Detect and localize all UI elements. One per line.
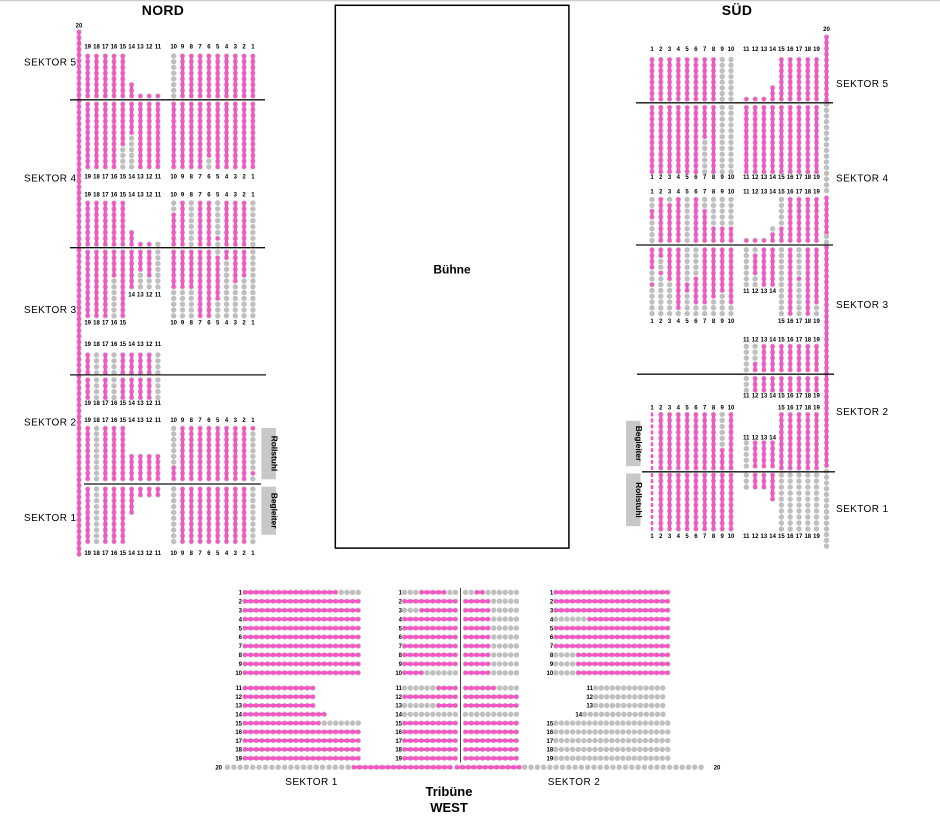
svg-text:17: 17	[796, 175, 803, 181]
svg-text:10: 10	[170, 193, 177, 199]
svg-text:19: 19	[84, 175, 91, 181]
svg-text:3: 3	[668, 319, 672, 325]
svg-text:5: 5	[216, 418, 220, 424]
svg-text:7: 7	[198, 321, 202, 327]
svg-text:15: 15	[778, 319, 785, 325]
svg-text:17: 17	[102, 193, 109, 199]
svg-text:13: 13	[761, 393, 768, 399]
svg-text:3: 3	[234, 551, 238, 557]
svg-text:4: 4	[225, 193, 229, 199]
svg-text:20: 20	[823, 27, 830, 33]
svg-text:17: 17	[796, 319, 803, 325]
svg-text:14: 14	[128, 551, 135, 557]
svg-text:16: 16	[787, 175, 794, 181]
svg-text:19: 19	[84, 418, 91, 424]
svg-text:14: 14	[128, 342, 135, 348]
svg-text:17: 17	[796, 393, 803, 399]
svg-text:9: 9	[721, 175, 725, 181]
svg-text:10: 10	[728, 534, 735, 540]
svg-text:7: 7	[198, 45, 202, 51]
svg-text:15: 15	[119, 321, 126, 327]
svg-text:14: 14	[769, 338, 776, 344]
svg-text:10: 10	[728, 175, 735, 181]
svg-text:19: 19	[813, 338, 820, 344]
svg-text:1: 1	[251, 551, 255, 557]
svg-text:3: 3	[668, 405, 672, 411]
svg-text:SEKTOR 1: SEKTOR 1	[836, 504, 889, 515]
svg-text:15: 15	[778, 175, 785, 181]
svg-text:10: 10	[728, 319, 735, 325]
svg-text:8: 8	[712, 190, 716, 196]
svg-text:12: 12	[146, 551, 153, 557]
svg-text:11: 11	[155, 551, 162, 557]
svg-text:12: 12	[752, 47, 759, 53]
svg-text:8: 8	[190, 45, 194, 51]
svg-text:10: 10	[728, 190, 735, 196]
svg-text:18: 18	[804, 338, 811, 344]
svg-text:SEKTOR 3: SEKTOR 3	[836, 300, 889, 311]
svg-text:6: 6	[207, 551, 211, 557]
svg-text:19: 19	[813, 393, 820, 399]
svg-text:9: 9	[181, 551, 185, 557]
svg-text:SEKTOR 2: SEKTOR 2	[24, 418, 77, 429]
svg-text:19: 19	[813, 175, 820, 181]
svg-text:13: 13	[137, 193, 144, 199]
svg-text:11: 11	[155, 193, 162, 199]
svg-text:16: 16	[787, 47, 794, 53]
svg-text:11: 11	[155, 418, 162, 424]
svg-text:13: 13	[137, 401, 144, 407]
svg-text:13: 13	[761, 534, 768, 540]
svg-text:12: 12	[752, 289, 759, 295]
svg-text:12: 12	[752, 175, 759, 181]
svg-text:2: 2	[242, 321, 246, 327]
svg-text:8: 8	[712, 175, 716, 181]
svg-text:17: 17	[102, 321, 109, 327]
svg-text:16: 16	[787, 190, 794, 196]
svg-text:3: 3	[234, 418, 238, 424]
svg-text:4: 4	[225, 45, 229, 51]
svg-text:11: 11	[155, 175, 162, 181]
svg-text:2: 2	[659, 190, 663, 196]
svg-text:17: 17	[796, 190, 803, 196]
svg-text:4: 4	[225, 175, 229, 181]
svg-text:15: 15	[119, 418, 126, 424]
svg-text:5: 5	[685, 534, 689, 540]
svg-text:17: 17	[796, 338, 803, 344]
svg-text:2: 2	[659, 175, 663, 181]
svg-text:NORD: NORD	[142, 2, 184, 18]
svg-text:17: 17	[102, 175, 109, 181]
svg-text:1: 1	[650, 47, 654, 53]
svg-text:11: 11	[743, 534, 750, 540]
svg-text:1: 1	[650, 319, 654, 325]
svg-text:1: 1	[650, 175, 654, 181]
svg-text:SÜD: SÜD	[722, 2, 752, 18]
svg-text:19: 19	[813, 190, 820, 196]
svg-text:17: 17	[102, 342, 109, 348]
svg-text:19: 19	[84, 321, 91, 327]
svg-text:12: 12	[752, 393, 759, 399]
svg-text:12: 12	[146, 193, 153, 199]
svg-text:1: 1	[650, 190, 654, 196]
svg-text:8: 8	[712, 319, 716, 325]
svg-text:18: 18	[804, 47, 811, 53]
svg-text:3: 3	[234, 321, 238, 327]
svg-text:SEKTOR 4: SEKTOR 4	[836, 174, 889, 185]
svg-text:18: 18	[804, 319, 811, 325]
svg-text:15: 15	[778, 190, 785, 196]
svg-text:10: 10	[728, 405, 735, 411]
svg-text:16: 16	[787, 405, 794, 411]
svg-text:16: 16	[787, 393, 794, 399]
svg-text:15: 15	[119, 551, 126, 557]
svg-text:17: 17	[796, 47, 803, 53]
svg-text:6: 6	[239, 635, 243, 641]
svg-text:7: 7	[703, 405, 707, 411]
svg-text:12: 12	[146, 418, 153, 424]
svg-text:5: 5	[685, 47, 689, 53]
svg-text:4: 4	[239, 617, 243, 623]
svg-text:19: 19	[813, 405, 820, 411]
svg-text:13: 13	[137, 551, 144, 557]
svg-text:5: 5	[216, 193, 220, 199]
svg-text:7: 7	[198, 193, 202, 199]
svg-text:3: 3	[668, 190, 672, 196]
svg-text:7: 7	[703, 190, 707, 196]
svg-text:10: 10	[170, 45, 177, 51]
svg-text:2: 2	[659, 47, 663, 53]
svg-text:13: 13	[761, 47, 768, 53]
svg-text:9: 9	[181, 175, 185, 181]
svg-text:18: 18	[93, 401, 100, 407]
svg-text:6: 6	[694, 175, 698, 181]
svg-text:19: 19	[84, 401, 91, 407]
svg-text:12: 12	[146, 401, 153, 407]
svg-text:15: 15	[778, 405, 785, 411]
svg-text:11: 11	[155, 342, 162, 348]
svg-text:SEKTOR 1: SEKTOR 1	[24, 513, 77, 524]
svg-text:18: 18	[93, 418, 100, 424]
svg-text:6: 6	[694, 47, 698, 53]
svg-text:2: 2	[242, 551, 246, 557]
svg-text:16: 16	[111, 418, 118, 424]
svg-text:11: 11	[743, 338, 750, 344]
svg-text:8: 8	[712, 47, 716, 53]
svg-text:12: 12	[752, 338, 759, 344]
svg-text:14: 14	[769, 175, 776, 181]
svg-text:11: 11	[155, 401, 162, 407]
svg-text:10: 10	[728, 47, 735, 53]
svg-text:15: 15	[119, 342, 126, 348]
svg-text:4: 4	[677, 319, 681, 325]
svg-text:SEKTOR 2: SEKTOR 2	[836, 407, 889, 418]
svg-text:12: 12	[146, 342, 153, 348]
svg-text:5: 5	[685, 190, 689, 196]
svg-text:16: 16	[111, 175, 118, 181]
svg-text:10: 10	[170, 551, 177, 557]
svg-text:2: 2	[659, 534, 663, 540]
svg-text:2: 2	[242, 45, 246, 51]
svg-text:Rollstuhl: Rollstuhl	[270, 436, 280, 472]
svg-text:3: 3	[234, 175, 238, 181]
svg-text:2: 2	[239, 600, 243, 606]
svg-text:14: 14	[769, 289, 776, 295]
svg-text:20: 20	[76, 24, 83, 30]
svg-text:5: 5	[216, 551, 220, 557]
svg-text:18: 18	[804, 534, 811, 540]
svg-text:1: 1	[251, 45, 255, 51]
svg-text:1: 1	[251, 175, 255, 181]
svg-text:18: 18	[804, 175, 811, 181]
svg-text:6: 6	[694, 190, 698, 196]
svg-text:10: 10	[170, 418, 177, 424]
svg-text:19: 19	[84, 342, 91, 348]
svg-text:9: 9	[181, 193, 185, 199]
svg-text:3: 3	[234, 193, 238, 199]
svg-text:7: 7	[198, 175, 202, 181]
svg-text:13: 13	[137, 175, 144, 181]
svg-text:19: 19	[84, 45, 91, 51]
svg-text:9: 9	[721, 47, 725, 53]
svg-text:1: 1	[251, 193, 255, 199]
svg-text:7: 7	[198, 418, 202, 424]
svg-text:5: 5	[216, 321, 220, 327]
svg-text:14: 14	[128, 418, 135, 424]
svg-text:4: 4	[225, 321, 229, 327]
svg-text:14: 14	[769, 47, 776, 53]
svg-text:9: 9	[181, 418, 185, 424]
svg-text:18: 18	[804, 405, 811, 411]
svg-text:18: 18	[93, 45, 100, 51]
svg-text:5: 5	[685, 175, 689, 181]
svg-text:12: 12	[752, 534, 759, 540]
svg-text:6: 6	[694, 405, 698, 411]
svg-text:18: 18	[93, 175, 100, 181]
svg-text:14: 14	[769, 534, 776, 540]
svg-text:12: 12	[752, 190, 759, 196]
svg-text:16: 16	[787, 338, 794, 344]
svg-text:13: 13	[137, 418, 144, 424]
svg-text:14: 14	[769, 393, 776, 399]
svg-text:6: 6	[207, 418, 211, 424]
svg-text:15: 15	[119, 193, 126, 199]
svg-text:13: 13	[137, 293, 144, 299]
svg-text:6: 6	[207, 175, 211, 181]
svg-text:8: 8	[190, 175, 194, 181]
svg-text:14: 14	[128, 45, 135, 51]
svg-text:1: 1	[650, 405, 654, 411]
svg-text:18: 18	[804, 190, 811, 196]
svg-text:11: 11	[155, 45, 162, 51]
svg-text:11: 11	[743, 393, 750, 399]
svg-text:7: 7	[703, 175, 707, 181]
svg-text:13: 13	[761, 190, 768, 196]
svg-text:2: 2	[659, 405, 663, 411]
svg-text:6: 6	[207, 45, 211, 51]
svg-text:1: 1	[650, 534, 654, 540]
svg-text:16: 16	[111, 342, 118, 348]
svg-text:6: 6	[207, 193, 211, 199]
svg-text:14: 14	[128, 175, 135, 181]
svg-text:6: 6	[207, 321, 211, 327]
svg-text:2: 2	[242, 175, 246, 181]
svg-text:11: 11	[743, 175, 750, 181]
svg-text:17: 17	[796, 534, 803, 540]
svg-text:SEKTOR 5: SEKTOR 5	[836, 79, 889, 90]
svg-text:7: 7	[198, 551, 202, 557]
svg-text:19: 19	[84, 193, 91, 199]
svg-text:SEKTOR 4: SEKTOR 4	[24, 174, 77, 185]
svg-text:19: 19	[813, 47, 820, 53]
svg-text:17: 17	[102, 418, 109, 424]
svg-text:3: 3	[668, 175, 672, 181]
svg-text:16: 16	[111, 321, 118, 327]
svg-text:13: 13	[137, 342, 144, 348]
svg-text:5: 5	[216, 45, 220, 51]
svg-text:11: 11	[743, 190, 750, 196]
svg-text:19: 19	[813, 534, 820, 540]
svg-text:18: 18	[93, 321, 100, 327]
svg-text:19: 19	[813, 319, 820, 325]
svg-text:4: 4	[677, 190, 681, 196]
svg-text:15: 15	[778, 338, 785, 344]
svg-text:16: 16	[111, 401, 118, 407]
svg-text:4: 4	[677, 534, 681, 540]
svg-text:3: 3	[668, 47, 672, 53]
svg-text:3: 3	[668, 534, 672, 540]
svg-text:15: 15	[119, 175, 126, 181]
svg-text:4: 4	[225, 551, 229, 557]
svg-text:18: 18	[93, 342, 100, 348]
svg-text:8: 8	[190, 551, 194, 557]
svg-text:7: 7	[703, 534, 707, 540]
svg-text:11: 11	[743, 289, 750, 295]
svg-text:2: 2	[242, 418, 246, 424]
svg-text:2: 2	[659, 319, 663, 325]
svg-text:15: 15	[119, 45, 126, 51]
svg-text:16: 16	[787, 319, 794, 325]
svg-text:6: 6	[694, 319, 698, 325]
svg-text:5: 5	[685, 405, 689, 411]
svg-text:13: 13	[761, 289, 768, 295]
svg-text:9: 9	[721, 190, 725, 196]
svg-text:18: 18	[804, 393, 811, 399]
svg-text:8: 8	[712, 534, 716, 540]
svg-text:8: 8	[712, 405, 716, 411]
svg-text:14: 14	[128, 401, 135, 407]
svg-text:8: 8	[190, 418, 194, 424]
svg-text:4: 4	[677, 175, 681, 181]
svg-text:16: 16	[111, 45, 118, 51]
svg-text:13: 13	[761, 175, 768, 181]
svg-text:3: 3	[239, 608, 243, 614]
svg-text:1: 1	[251, 418, 255, 424]
svg-text:12: 12	[146, 293, 153, 299]
svg-text:12: 12	[146, 45, 153, 51]
svg-text:SEKTOR 5: SEKTOR 5	[24, 58, 77, 69]
svg-text:17: 17	[796, 405, 803, 411]
svg-text:17: 17	[102, 551, 109, 557]
svg-text:4: 4	[677, 47, 681, 53]
svg-text:15: 15	[778, 393, 785, 399]
svg-text:5: 5	[685, 319, 689, 325]
svg-text:14: 14	[128, 293, 135, 299]
svg-text:16: 16	[787, 534, 794, 540]
svg-text:14: 14	[128, 193, 135, 199]
svg-text:2: 2	[242, 193, 246, 199]
svg-text:17: 17	[102, 45, 109, 51]
svg-text:17: 17	[102, 401, 109, 407]
svg-text:16: 16	[111, 551, 118, 557]
svg-text:9: 9	[721, 319, 725, 325]
svg-text:12: 12	[146, 175, 153, 181]
svg-text:15: 15	[778, 47, 785, 53]
svg-text:5: 5	[216, 175, 220, 181]
svg-text:1: 1	[239, 591, 243, 597]
svg-text:9: 9	[721, 405, 725, 411]
svg-text:7: 7	[703, 47, 707, 53]
svg-text:SEKTOR 3: SEKTOR 3	[24, 305, 77, 316]
svg-text:4: 4	[225, 418, 229, 424]
svg-text:13: 13	[761, 338, 768, 344]
svg-text:9: 9	[181, 321, 185, 327]
svg-text:Begleiter: Begleiter	[270, 493, 280, 529]
svg-text:8: 8	[190, 321, 194, 327]
svg-text:10: 10	[170, 321, 177, 327]
svg-text:9: 9	[721, 534, 725, 540]
svg-text:Bühne: Bühne	[433, 263, 471, 277]
svg-text:15: 15	[119, 401, 126, 407]
svg-text:18: 18	[93, 193, 100, 199]
svg-text:Rollstuhl: Rollstuhl	[634, 482, 644, 518]
svg-text:11: 11	[155, 293, 162, 299]
svg-text:16: 16	[111, 193, 118, 199]
svg-text:13: 13	[137, 45, 144, 51]
svg-text:9: 9	[181, 45, 185, 51]
svg-text:18: 18	[93, 551, 100, 557]
svg-text:15: 15	[778, 534, 785, 540]
svg-text:6: 6	[694, 534, 698, 540]
svg-text:7: 7	[703, 319, 707, 325]
svg-text:10: 10	[170, 175, 177, 181]
svg-text:3: 3	[234, 45, 238, 51]
svg-text:5: 5	[239, 626, 243, 632]
svg-text:Begleiter: Begleiter	[634, 426, 644, 462]
svg-text:1: 1	[251, 321, 255, 327]
svg-text:19: 19	[84, 551, 91, 557]
svg-text:14: 14	[769, 190, 776, 196]
svg-text:8: 8	[190, 193, 194, 199]
svg-text:4: 4	[677, 405, 681, 411]
svg-text:11: 11	[743, 47, 750, 53]
